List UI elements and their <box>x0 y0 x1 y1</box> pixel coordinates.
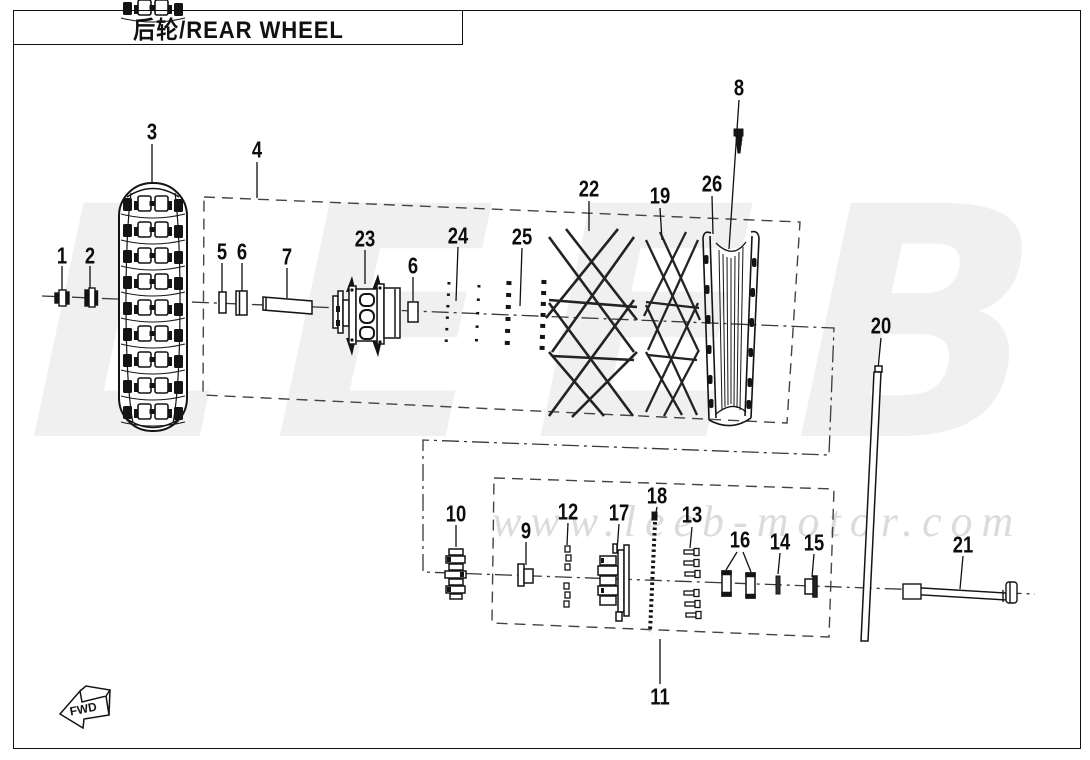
callout-25: 25 <box>509 226 535 249</box>
callout-18: 18 <box>644 485 670 508</box>
callout-6-right: 6 <box>407 255 420 278</box>
part-15-nut <box>805 576 817 597</box>
part-6-bushing-left <box>236 291 247 315</box>
callout-5: 5 <box>216 241 229 264</box>
part-10-sprocket <box>445 549 466 599</box>
callout-14: 14 <box>767 531 793 554</box>
part-16-spacers <box>722 571 755 598</box>
callout-9: 9 <box>520 520 533 543</box>
part-1-nut <box>55 290 69 306</box>
part-19-spokes <box>644 232 700 416</box>
callout-11: 11 <box>648 686 672 709</box>
part-17-brake-hub <box>598 544 629 621</box>
callout-16: 16 <box>727 529 753 552</box>
callout-15: 15 <box>801 532 827 555</box>
callout-21: 21 <box>950 534 976 557</box>
callout-17: 17 <box>606 502 632 525</box>
part-3-tire <box>119 0 187 431</box>
part-13-bolts <box>684 549 701 619</box>
parts-diagram-page: LEEB www.leeb-motor.com 后轮/REAR WHEEL <box>0 0 1090 760</box>
callout-24: 24 <box>445 225 471 248</box>
callout-1: 1 <box>56 245 69 268</box>
callout-13: 13 <box>679 504 705 527</box>
callout-2: 2 <box>84 245 97 268</box>
part-20-rod <box>861 366 882 641</box>
callout-26: 26 <box>699 173 725 196</box>
part-26-rim <box>703 232 759 426</box>
part-9-bushing <box>518 564 533 586</box>
fwd-arrow: FWD <box>60 686 110 728</box>
part-2-washer <box>85 288 98 307</box>
part-23-hub <box>333 274 400 357</box>
callout-8: 8 <box>733 77 746 100</box>
part-18-stud <box>650 512 657 632</box>
part-7-sleeve-tube <box>263 297 312 314</box>
leader-lines <box>62 100 963 684</box>
title-box: 后轮/REAR WHEEL <box>13 10 463 45</box>
callout-12: 12 <box>555 501 581 524</box>
exploded-view-canvas: FWD <box>0 0 1090 760</box>
callout-22: 22 <box>576 178 602 201</box>
callout-20: 20 <box>868 315 894 338</box>
callout-3: 3 <box>146 121 159 144</box>
part-24-nipple-set <box>446 282 479 350</box>
callout-23: 23 <box>352 228 378 251</box>
center-axis-line <box>42 296 1035 594</box>
part-6-bushing-right <box>408 302 418 322</box>
part-22-spokes <box>546 229 637 417</box>
part-5-spacer <box>219 292 226 313</box>
callout-6-left: 6 <box>236 241 249 264</box>
callout-7: 7 <box>281 246 294 269</box>
callout-4: 4 <box>251 139 264 162</box>
callout-10: 10 <box>443 503 469 526</box>
callout-19: 19 <box>647 185 673 208</box>
part-14-washer <box>776 576 780 594</box>
page-title: 后轮/REAR WHEEL <box>133 10 344 45</box>
